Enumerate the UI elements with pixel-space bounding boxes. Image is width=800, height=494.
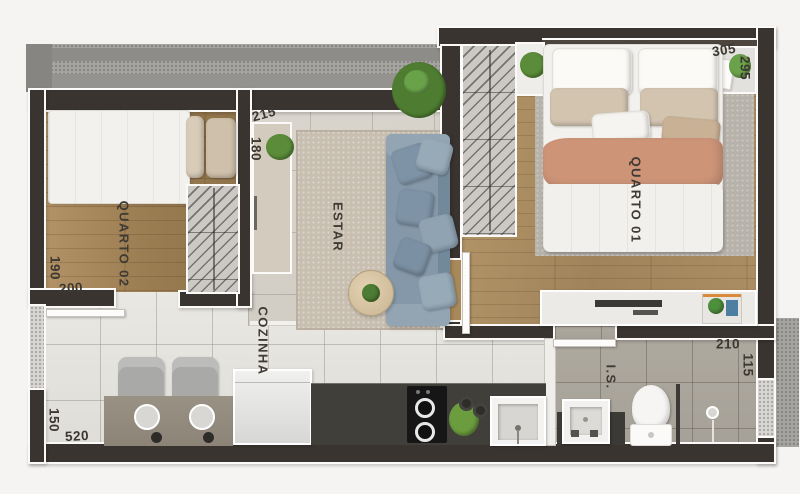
cooktop-knob — [426, 390, 430, 394]
cooktop-burner — [415, 398, 435, 418]
console-decor-plant — [708, 298, 724, 314]
wardrobe-rod — [489, 50, 491, 231]
wardrobe-rod — [213, 188, 215, 290]
room-label-quarto-01: QUARTO 01 — [629, 157, 644, 244]
door-bathroom — [553, 339, 616, 347]
wardrobe-bedroom2 — [186, 184, 240, 294]
exterior-ground-right — [776, 318, 799, 447]
coffee-table-plant — [362, 284, 380, 302]
place-setting — [134, 404, 160, 430]
refrigerator-seam — [235, 382, 310, 383]
dim-label-200: 200 — [58, 280, 83, 297]
entry-plant-leaf — [404, 70, 430, 94]
cooktop-burner — [415, 422, 435, 442]
sofa-pillow — [417, 271, 458, 312]
room-label-estar: ESTAR — [331, 202, 346, 252]
dim-label-295: 295 — [738, 56, 753, 80]
single-bed — [48, 110, 190, 204]
bed2-pillow — [186, 116, 204, 178]
dim-label-190: 190 — [48, 256, 63, 280]
door-opening-bathroom — [553, 326, 617, 339]
kitchen-faucet-stem — [517, 430, 519, 444]
room-label-quarto-02: QUARTO 02 — [117, 201, 132, 288]
soundbar — [633, 310, 658, 315]
tv — [595, 300, 662, 307]
wall-left-upper — [28, 88, 46, 306]
canister — [473, 403, 488, 418]
door-bedroom1 — [462, 252, 470, 334]
shower-hose — [712, 420, 714, 442]
dim-label-150: 150 — [47, 408, 62, 432]
dim-label-520: 520 — [65, 428, 90, 444]
bathroom-shower-partition — [676, 384, 680, 444]
dim-label-180: 180 — [249, 137, 264, 161]
toilet-flush-button — [648, 432, 654, 438]
window-left — [28, 304, 46, 390]
sideboard-plant — [266, 134, 294, 160]
shower-fixture — [706, 406, 719, 419]
window-right — [756, 378, 776, 438]
canister — [459, 396, 474, 411]
floor-plan: QUARTO 02 ESTAR QUARTO 01 COZINHA I.S. 2… — [0, 0, 800, 494]
dim-label-115: 115 — [741, 353, 756, 376]
table-dot — [151, 432, 162, 443]
room-label-cozinha: COZINHA — [256, 306, 271, 375]
bathroom-faucet — [583, 417, 588, 422]
console-decor-stripe — [703, 294, 741, 297]
sink-button — [571, 430, 579, 437]
door-bedroom2 — [46, 309, 125, 317]
wall-left-lower — [28, 388, 46, 464]
console-decor-art — [726, 300, 738, 316]
dim-label-210: 210 — [716, 337, 740, 352]
sink-button — [590, 430, 598, 437]
wardrobe-bedroom1 — [461, 44, 517, 237]
sideboard-handle — [254, 196, 257, 230]
exterior-column — [26, 44, 52, 92]
refrigerator — [233, 369, 312, 445]
cooktop-knob — [416, 390, 420, 394]
table-dot — [203, 432, 214, 443]
bed2-pillow — [206, 118, 236, 178]
place-setting — [189, 404, 215, 430]
room-label-is: I.S. — [604, 364, 619, 389]
